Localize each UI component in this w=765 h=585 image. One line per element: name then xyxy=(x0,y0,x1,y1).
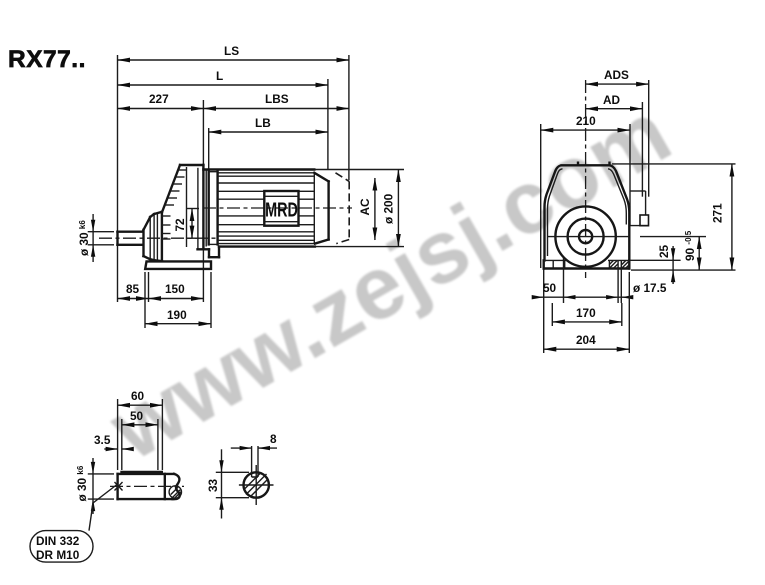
svg-text:MRD: MRD xyxy=(265,198,298,221)
svg-text:8: 8 xyxy=(270,432,277,446)
svg-text:ø 200: ø 200 xyxy=(382,193,396,224)
svg-text:227: 227 xyxy=(149,92,169,106)
svg-text:DR M10: DR M10 xyxy=(36,548,80,562)
svg-text:50: 50 xyxy=(543,281,557,295)
svg-text:LB: LB xyxy=(255,116,271,130)
svg-text:LS: LS xyxy=(224,44,239,58)
svg-text:50: 50 xyxy=(130,409,144,423)
svg-text:3.5: 3.5 xyxy=(94,433,111,447)
svg-text:204: 204 xyxy=(576,333,596,347)
svg-text:AD: AD xyxy=(603,93,621,107)
svg-text:LBS: LBS xyxy=(265,92,289,106)
svg-text:RX77..: RX77.. xyxy=(8,46,86,73)
svg-text:210: 210 xyxy=(576,114,596,128)
svg-text:25: 25 xyxy=(657,244,671,258)
svg-text:ADS: ADS xyxy=(604,68,629,82)
svg-text:DIN 332: DIN 332 xyxy=(36,534,80,548)
svg-text:190: 190 xyxy=(167,308,187,322)
svg-text:271: 271 xyxy=(711,203,725,223)
svg-text:85: 85 xyxy=(126,282,140,296)
svg-text:33: 33 xyxy=(206,478,220,492)
svg-text:60: 60 xyxy=(131,389,145,403)
svg-text:150: 150 xyxy=(165,282,185,296)
svg-text:AC: AC xyxy=(358,198,372,216)
svg-text:72: 72 xyxy=(173,218,187,232)
svg-text:L: L xyxy=(216,69,223,83)
svg-text:170: 170 xyxy=(576,306,596,320)
svg-text:ø 17.5: ø 17.5 xyxy=(633,281,667,295)
